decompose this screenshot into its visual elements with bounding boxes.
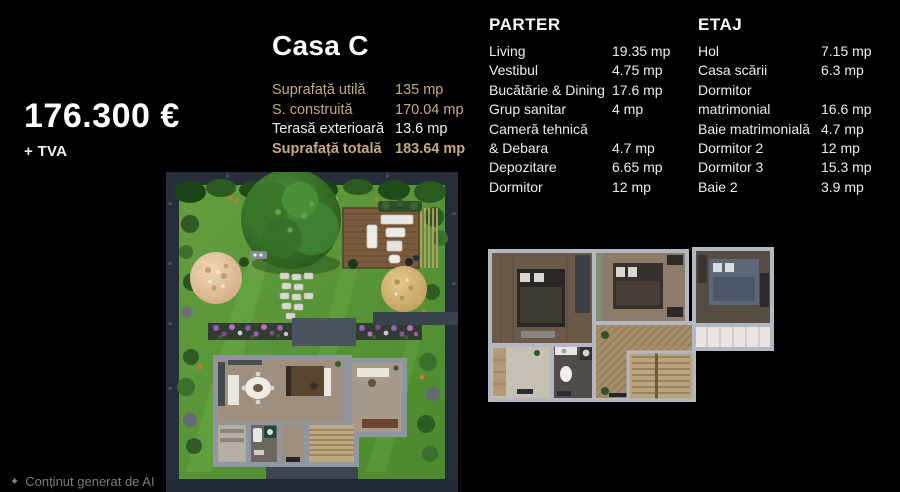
room-label: Vestibul xyxy=(489,61,612,80)
room-row: Grup sanitar 4 mp xyxy=(489,100,689,119)
room-label: Grup sanitar xyxy=(489,100,612,119)
area-value: 13.6 mp xyxy=(395,120,487,140)
room-label: Casa scării xyxy=(698,61,821,80)
ai-content-note: ✦ Conținut generat de AI xyxy=(10,474,155,489)
etaj-floor-plan-image xyxy=(487,243,775,413)
area-summary-list: Suprafață utilă 135 mp S. construită 170… xyxy=(272,81,487,159)
room-list-etaj: Hol 7.15 mp Casa scării 6.3 mp Dormitor … xyxy=(698,42,898,197)
room-row: & Debara 4.7 mp xyxy=(489,139,689,158)
ai-note-text: Conținut generat de AI xyxy=(25,474,154,489)
room-label: Dormitor xyxy=(489,178,612,197)
entry-path xyxy=(292,318,356,346)
room-row: Dormitor 12 mp xyxy=(489,178,689,197)
ai-sparkle-icon: ✦ xyxy=(10,475,19,488)
room-label: Baie 2 xyxy=(698,178,821,197)
floor-title-parter: PARTER xyxy=(489,15,689,35)
area-row: Terasă exterioară 13.6 mp xyxy=(272,120,487,140)
paved-area xyxy=(373,312,458,325)
room-row: Casa scării 6.3 mp xyxy=(698,61,898,80)
area-value: 135 mp xyxy=(395,81,487,101)
area-label: Suprafață utilă xyxy=(272,81,395,101)
room-label: Baie matrimonială xyxy=(698,120,821,139)
area-row: Suprafață utilă 135 mp xyxy=(272,81,487,101)
room-value: 4.7 mp xyxy=(612,139,689,158)
room-list-parter: Living 19.35 mp Vestibul 4.75 mp Bucătăr… xyxy=(489,42,689,197)
house-summary: Casa C Suprafață utilă 135 mp S. constru… xyxy=(272,30,487,159)
room-value: 6.3 mp xyxy=(821,61,898,80)
area-label: S. construită xyxy=(272,101,395,121)
room-row: Dormitor xyxy=(698,81,898,100)
room-row: Dormitor 2 12 mp xyxy=(698,139,898,158)
vat-note: + TVA xyxy=(24,143,180,160)
room-value: 12 mp xyxy=(821,139,898,158)
house-title: Casa C xyxy=(272,30,487,62)
room-label: Dormitor 2 xyxy=(698,139,821,158)
large-tree xyxy=(241,172,341,275)
room-value xyxy=(612,120,689,139)
room-row: Hol 7.15 mp xyxy=(698,42,898,61)
floor-section-etaj: ETAJ Hol 7.15 mp Casa scării 6.3 mp Dorm… xyxy=(698,15,898,197)
staircase xyxy=(628,352,694,400)
room-value: 6.65 mp xyxy=(612,158,689,177)
room-row: Cameră tehnică xyxy=(489,120,689,139)
room-row: Baie 2 3.9 mp xyxy=(698,178,898,197)
room-row: Living 19.35 mp xyxy=(489,42,689,61)
room-label: Cameră tehnică xyxy=(489,120,612,139)
room-row: Vestibul 4.75 mp xyxy=(489,61,689,80)
room-row: matrimonial 16.6 mp xyxy=(698,100,898,119)
floor-section-parter: PARTER Living 19.35 mp Vestibul 4.75 mp … xyxy=(489,15,689,197)
area-label: Terasă exterioară xyxy=(272,120,395,140)
area-row: Suprafață totală 183.64 mp xyxy=(272,140,487,160)
golden-tree xyxy=(381,266,427,312)
peach-tree xyxy=(190,252,242,304)
room-value: 17.6 mp xyxy=(612,81,689,100)
room-row: Baie matrimonială 4.7 mp xyxy=(698,120,898,139)
room-label: Dormitor xyxy=(698,81,821,100)
floor-title-etaj: ETAJ xyxy=(698,15,898,35)
room-value: 4 mp xyxy=(612,100,689,119)
room-value: 4.7 mp xyxy=(821,120,898,139)
room-label: Bucătărie & Dining xyxy=(489,81,612,100)
room-row: Bucătărie & Dining 17.6 mp xyxy=(489,81,689,100)
room-label: Dormitor 3 xyxy=(698,158,821,177)
room-label: Living xyxy=(489,42,612,61)
room-value: 16.6 mp xyxy=(821,100,898,119)
area-value: 183.64 mp xyxy=(395,140,487,160)
area-row: S. construită 170.04 mp xyxy=(272,101,487,121)
garden-site-plan-image xyxy=(166,172,458,492)
room-row: Depozitare 6.65 mp xyxy=(489,158,689,177)
room-value xyxy=(821,81,898,100)
room-value: 4.75 mp xyxy=(612,61,689,80)
room-label: & Debara xyxy=(489,139,612,158)
area-value: 170.04 mp xyxy=(395,101,487,121)
room-value: 3.9 mp xyxy=(821,178,898,197)
room-label: Hol xyxy=(698,42,821,61)
room-label: matrimonial xyxy=(698,100,821,119)
area-label: Suprafață totală xyxy=(272,140,395,160)
price-block: 176.300 € + TVA xyxy=(24,97,180,160)
room-value: 15.3 mp xyxy=(821,158,898,177)
price-amount: 176.300 € xyxy=(24,97,180,136)
room-value: 12 mp xyxy=(612,178,689,197)
room-label: Depozitare xyxy=(489,158,612,177)
room-value: 19.35 mp xyxy=(612,42,689,61)
room-row: Dormitor 3 15.3 mp xyxy=(698,158,898,177)
room-value: 7.15 mp xyxy=(821,42,898,61)
